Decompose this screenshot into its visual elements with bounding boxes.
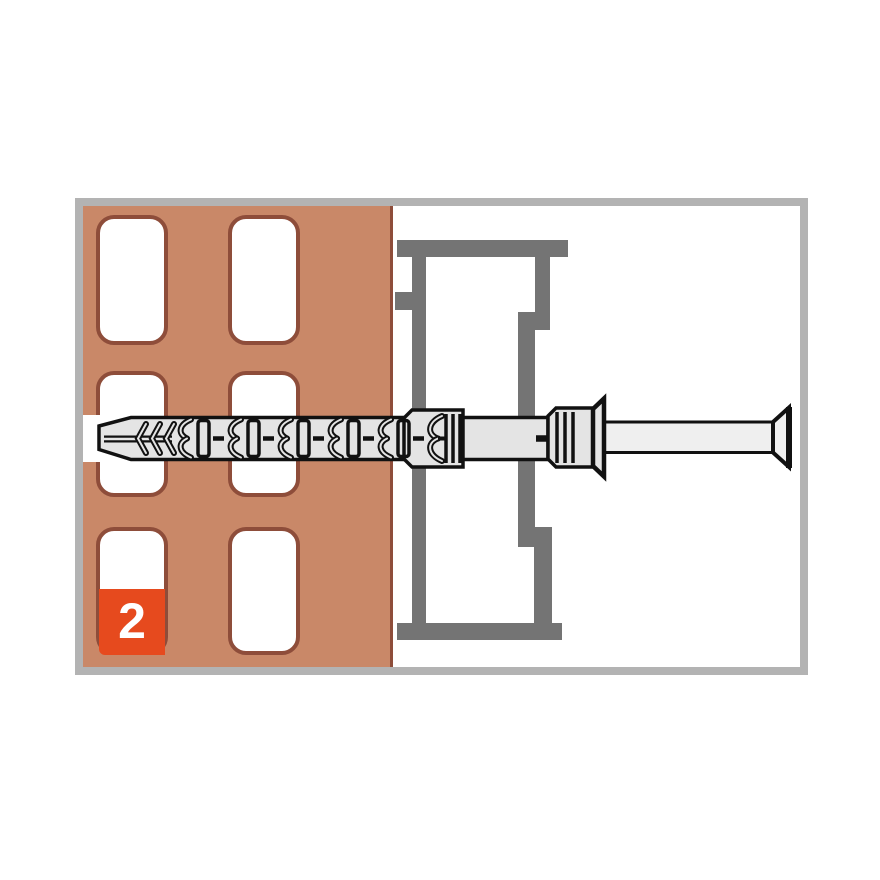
brick-cavity: [228, 527, 300, 655]
plug-flange: [593, 399, 604, 477]
illustration-panel: 2: [75, 198, 808, 675]
installation-step-illustration: 2: [0, 0, 880, 880]
frame-profile-left-stub: [395, 292, 413, 310]
screw-shaft: [600, 422, 773, 453]
brick-cavity: [96, 215, 168, 345]
plug-sleeve: [463, 418, 548, 460]
step-number-badge: 2: [99, 589, 165, 655]
brick-cavity: [228, 215, 300, 345]
step-number: 2: [118, 596, 146, 646]
frame-anchor-illustration: [83, 393, 800, 490]
frame-profile-top-bar: [397, 240, 568, 257]
plug-front-collar: [548, 408, 593, 467]
frame-profile-bottom-bar: [397, 623, 562, 640]
frame-profile-right-outer-top: [535, 257, 550, 330]
